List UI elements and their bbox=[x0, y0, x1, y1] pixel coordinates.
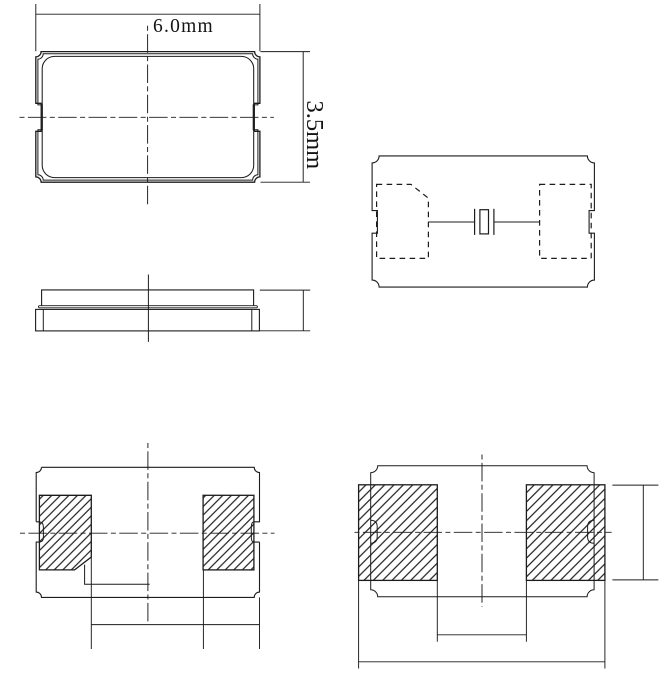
svg-text:6.0mm: 6.0mm bbox=[153, 16, 214, 37]
svg-text:3.5mm: 3.5mm bbox=[301, 101, 328, 170]
